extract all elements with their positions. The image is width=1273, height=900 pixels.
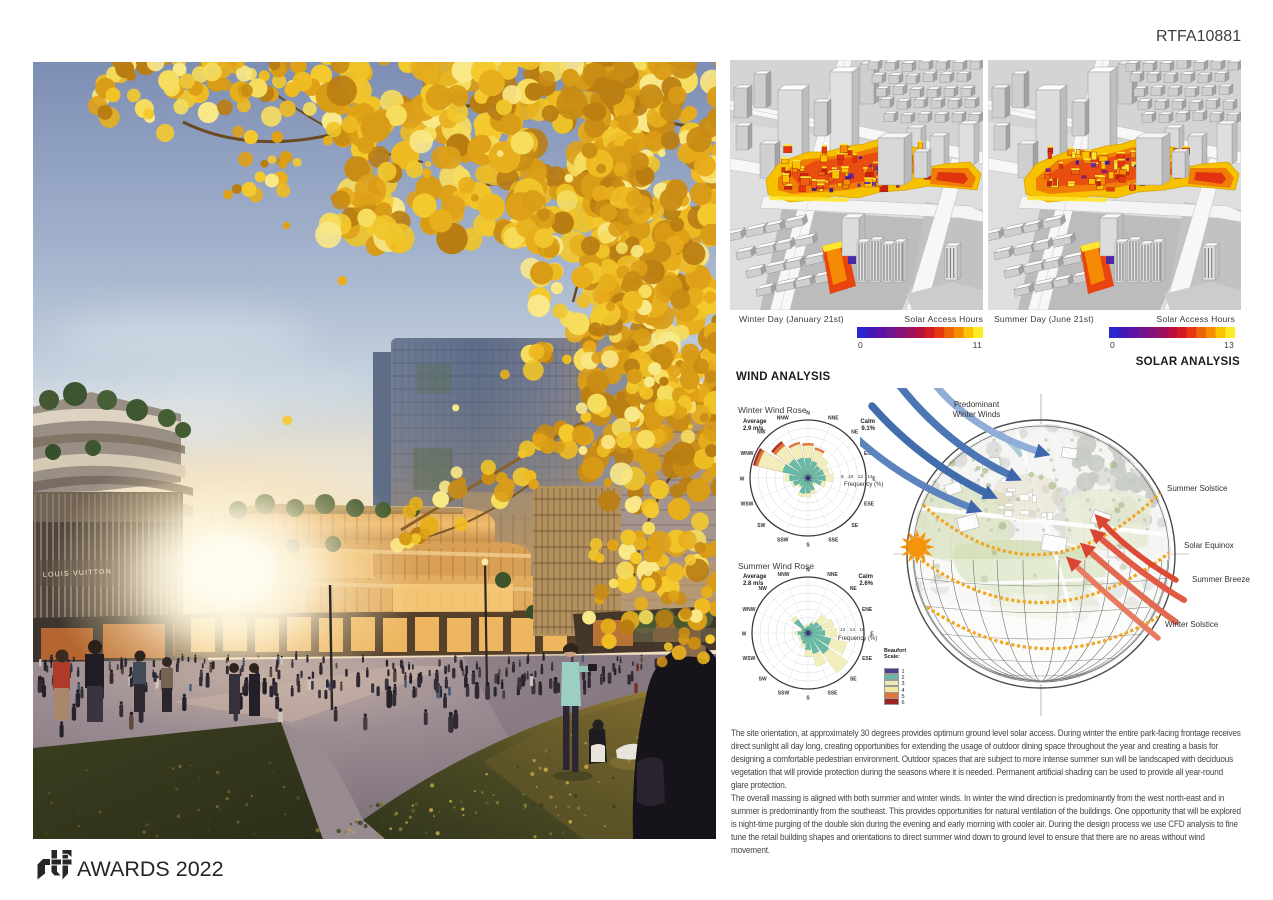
svg-text:NNE: NNE	[827, 572, 838, 578]
svg-text:NNW: NNW	[778, 572, 790, 578]
svg-text:WNW: WNW	[740, 451, 753, 457]
svg-text:WSW: WSW	[743, 656, 756, 662]
svg-text:SW: SW	[757, 523, 765, 529]
svg-text:S: S	[806, 695, 810, 701]
svg-text:SE: SE	[850, 677, 857, 683]
svg-text:S: S	[806, 542, 810, 548]
svg-text:SSW: SSW	[778, 690, 790, 696]
svg-text:N: N	[806, 410, 810, 416]
svg-text:NNW: NNW	[777, 415, 789, 421]
svg-text:NNE: NNE	[828, 415, 839, 421]
svg-text:WNW: WNW	[742, 607, 755, 613]
svg-text:W: W	[740, 476, 745, 482]
svg-text:SW: SW	[759, 677, 767, 683]
svg-text:SSE: SSE	[828, 537, 839, 543]
svg-text:SE: SE	[851, 523, 858, 529]
svg-text:SSE: SSE	[827, 690, 838, 696]
svg-text:W: W	[742, 631, 747, 637]
svg-text:SSW: SSW	[777, 537, 789, 543]
svg-text:N: N	[806, 567, 810, 573]
svg-text:WSW: WSW	[741, 502, 754, 508]
